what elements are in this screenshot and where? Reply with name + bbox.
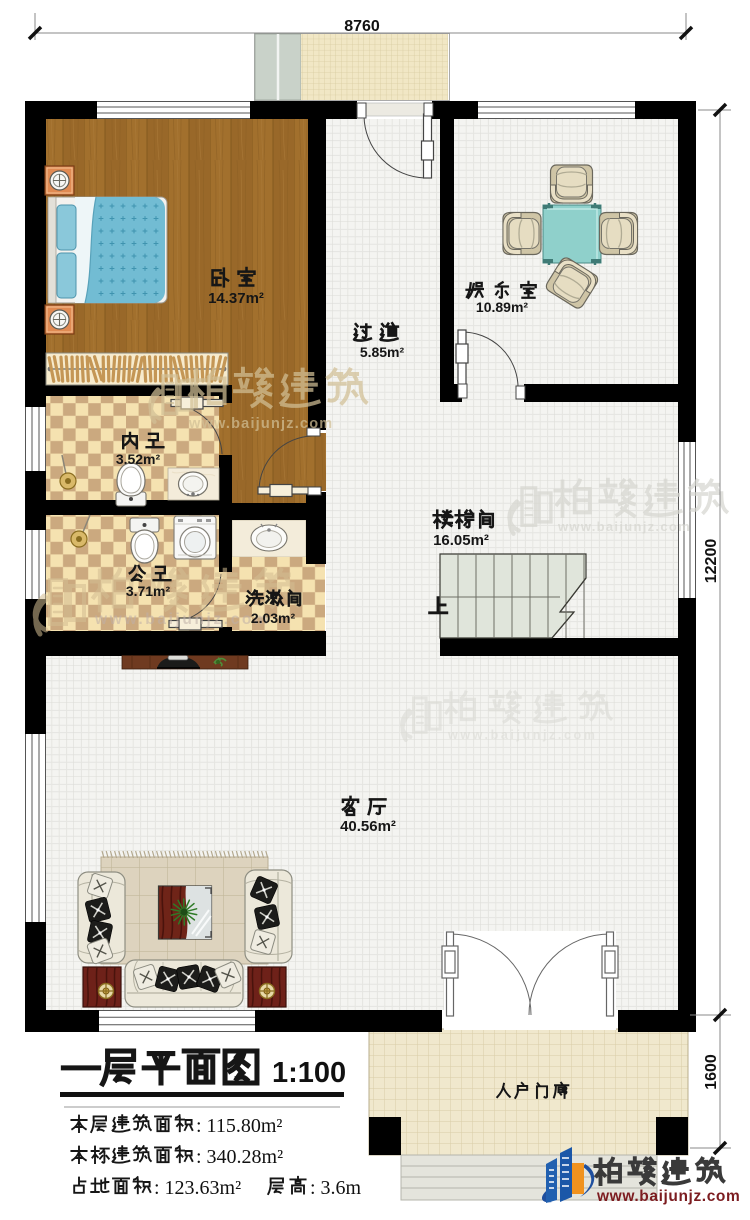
- svg-text:2.03m²: 2.03m²: [251, 610, 296, 626]
- svg-text:www.baijunjz.com: www.baijunjz.com: [447, 728, 597, 742]
- svg-text:1600: 1600: [703, 1054, 720, 1090]
- svg-text:12200: 12200: [703, 539, 720, 584]
- svg-text:: 3.6m: : 3.6m: [310, 1177, 362, 1199]
- svg-text:: 115.80m²: : 115.80m²: [196, 1115, 282, 1137]
- svg-text:40.56m²: 40.56m²: [340, 818, 396, 835]
- svg-text:www.baijunjz.com: www.baijunjz.com: [188, 416, 333, 432]
- svg-text:www.baijunjz.com: www.baijunjz.com: [596, 1188, 740, 1205]
- svg-text:3.52m²: 3.52m²: [116, 451, 161, 467]
- svg-text:www.baijunjz.com: www.baijunjz.com: [94, 611, 270, 628]
- svg-text:: 123.63m²: : 123.63m²: [154, 1177, 241, 1199]
- svg-text:1:100: 1:100: [272, 1057, 346, 1089]
- svg-text:www.baijunjz.com: www.baijunjz.com: [557, 519, 691, 534]
- svg-text:8760: 8760: [344, 18, 380, 35]
- svg-text:14.37m²: 14.37m²: [208, 290, 264, 307]
- svg-text:3.71m²: 3.71m²: [126, 583, 171, 599]
- svg-text:: 340.28m²: : 340.28m²: [196, 1146, 283, 1168]
- svg-text:10.89m²: 10.89m²: [476, 299, 528, 315]
- svg-text:16.05m²: 16.05m²: [433, 532, 489, 549]
- svg-text:5.85m²: 5.85m²: [360, 344, 405, 360]
